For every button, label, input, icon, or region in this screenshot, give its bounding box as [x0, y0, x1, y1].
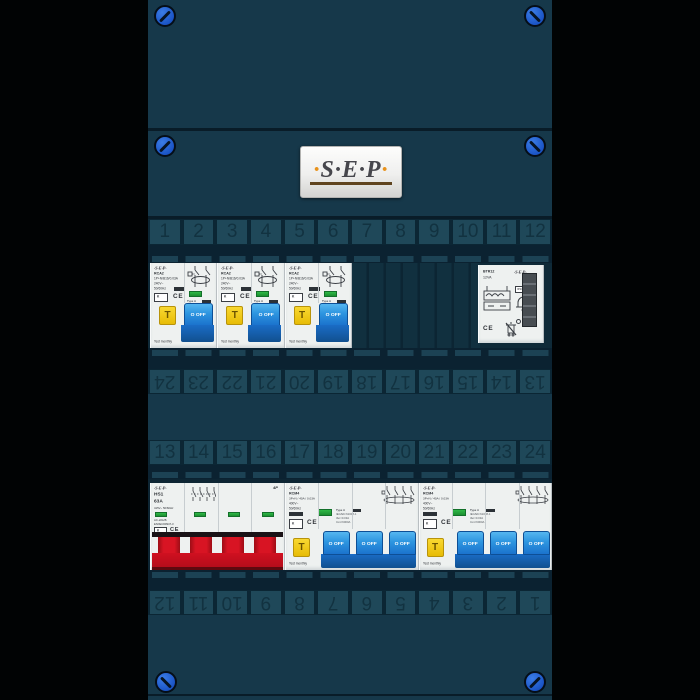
status-indicator [155, 512, 167, 517]
module-separator [184, 263, 185, 303]
voltage-label: 240V~ [221, 282, 230, 285]
module-separator [251, 263, 252, 303]
model-label: RCA2 [154, 272, 164, 276]
status-indicator [189, 291, 202, 297]
module-separator [318, 483, 319, 529]
module-number-cell: 11 [183, 590, 215, 615]
module-number-cell: 15 [216, 440, 248, 465]
standard-label: IEC/EN 61008-1 [470, 513, 490, 516]
main-switch: ·S·E·P· HS1 63A 415V~ 50/60Hz AC-22A/B E… [150, 483, 285, 570]
inm-label: Inm=6000A [470, 521, 484, 524]
kema-mark: K [423, 519, 437, 529]
test-monthly-note: Test monthly [154, 340, 172, 343]
idn-label: IΔn=0.03A [336, 517, 349, 520]
voltage-label: 400V~ [423, 502, 432, 505]
group-number-strip-lower-middle: 131415161718192021222324 [148, 440, 552, 465]
sep-logo: S·E·P [313, 159, 388, 181]
module-separator [385, 483, 386, 529]
poles-label: 4P [273, 486, 278, 490]
brand-plate: S·E·P [300, 146, 402, 198]
din-rail-row-bottom: ·S·E·P· HS1 63A 415V~ 50/60Hz AC-22A/B E… [148, 479, 552, 570]
status-indicator [256, 291, 269, 297]
kema-mark: K [289, 519, 303, 529]
module-number-cell: 19 [351, 440, 383, 465]
idn-label: IΔn=0.03A [470, 517, 483, 520]
module-number-cell: 15 [452, 369, 484, 394]
module-separator [352, 483, 353, 529]
cover-screw [154, 5, 176, 27]
module-number-cell: 18 [351, 369, 383, 394]
module-number-cell: 16 [250, 440, 282, 465]
module-number-cell: 5 [385, 590, 417, 615]
sep-mini-logo: ·S·E·P· [154, 266, 166, 270]
cover-screw [524, 671, 546, 693]
circuit-diagram-icon [190, 486, 216, 502]
frequency-label: 50/60Hz [289, 507, 301, 510]
module-separator [485, 483, 486, 529]
module-number-cell: 1 [149, 219, 181, 245]
type-label: Type A [336, 509, 345, 512]
circuit-diagram-icon [322, 265, 349, 288]
module-number-cell: 1 [519, 590, 551, 615]
rcd-switch: ·S·E·P· RCM4 3P+N / 40A / 0.03A 400V~ 50… [419, 483, 553, 570]
module-number-cell: 14 [183, 440, 215, 465]
breaker-toggle[interactable]: O OFF [251, 303, 280, 326]
cover-screw [524, 5, 546, 27]
module-separator [184, 483, 185, 532]
module-number-cell: 9 [250, 590, 282, 615]
cover-seam [148, 128, 552, 131]
model-label: RCM4 [423, 492, 433, 496]
transformer-symbol-icon [482, 285, 512, 313]
module-number-cell: 10 [452, 219, 484, 245]
standard-label: IEC/EN 61008-1 [336, 513, 356, 516]
model-label: BTR12 [483, 270, 494, 274]
test-button[interactable]: T [226, 306, 243, 325]
group-number-strip-bottom: 123456789101112 [148, 590, 552, 615]
main-switch-handle[interactable] [222, 537, 244, 554]
module-number-cell: 16 [418, 369, 450, 394]
circuit-diagram-icon [187, 265, 214, 288]
kema-mark: K [154, 293, 168, 302]
voltage-label: 400V~ [289, 502, 298, 505]
mounting-tabs [148, 350, 552, 356]
module-number-cell: 22 [216, 369, 248, 394]
circuit-diagram-icon [254, 265, 281, 288]
ce-mark: CE [483, 325, 494, 331]
current-label: 63A [154, 499, 163, 504]
rating-box [289, 512, 303, 516]
rcbo-group: ·S·E·P· RCA2 1P+N/B16/0.03A 240V~ 50/60H… [150, 263, 352, 348]
frequency-label: 50/60Hz [221, 287, 233, 290]
module-number-cell: 2 [486, 590, 518, 615]
ce-mark: CE [307, 519, 318, 525]
bell-transformer: BTR12 12VA ·S·E·P· IP20 [478, 265, 544, 343]
test-button[interactable]: T [293, 538, 310, 557]
test-monthly-note: Test monthly [423, 562, 441, 565]
module-number-cell: 7 [317, 590, 349, 615]
module-number-cell: 8 [385, 219, 417, 245]
module-number-cell: 21 [250, 369, 282, 394]
module-number-cell: 13 [149, 440, 181, 465]
sep-mini-logo: ·S·E·P· [154, 486, 166, 490]
ce-mark: CE [240, 293, 251, 299]
spec-label: 1P+N/B16/0.03A [154, 277, 178, 280]
rating-label: 12VA [483, 276, 492, 280]
toggle-base [321, 554, 416, 568]
module-number-cell: 11 [486, 219, 518, 245]
din-recess [148, 348, 552, 369]
toggle-base [248, 325, 281, 342]
spec-label: 3P+N / 40A / 0.03A [423, 497, 449, 500]
rcd-toggle[interactable]: O OFF [490, 531, 517, 555]
spec-label: 1P+N/B16/0.03A [221, 277, 245, 280]
distribution-board-photo: S·E·P 123456789101112 131415161718192021… [0, 0, 700, 700]
ce-mark: CE [173, 293, 184, 299]
module-number-cell: 20 [385, 440, 417, 465]
test-button[interactable]: T [159, 306, 176, 325]
din-rail-row-top: ·S·E·P· RCA2 1P+N/B16/0.03A 240V~ 50/60H… [148, 263, 552, 348]
test-button[interactable]: T [294, 306, 311, 325]
module-number-cell: 19 [317, 369, 349, 394]
status-indicator [262, 512, 274, 517]
status-indicator [452, 509, 466, 516]
rcd-toggle[interactable]: O OFF [523, 531, 550, 555]
module-number-cell: 3 [452, 590, 484, 615]
model-label: HS1 [154, 492, 163, 497]
rcd-toggle[interactable]: O OFF [389, 531, 416, 555]
status-indicator [324, 291, 337, 297]
status-indicator [228, 512, 240, 517]
module-separator [218, 483, 219, 532]
type-label: Type A [470, 509, 479, 512]
ce-mark: CE [441, 519, 452, 525]
rcd-toggle[interactable]: O OFF [323, 531, 350, 555]
module-number-cell: 8 [284, 590, 316, 615]
rcd-toggle[interactable]: O OFF [457, 531, 484, 555]
weee-bin-icon [505, 322, 517, 337]
breaker-toggle[interactable]: O OFF [319, 303, 348, 326]
spec-label: 3P+N / 40A / 0.03A [289, 497, 315, 500]
rcbo-breaker: ·S·E·P· RCA2 1P+N/B16/0.03A 240V~ 50/60H… [150, 263, 217, 348]
type-box [352, 509, 361, 512]
module-number-cell: 12 [149, 590, 181, 615]
empty-module-slots [352, 263, 480, 348]
type-box [486, 509, 495, 512]
sep-mini-logo: ·S·E·P· [423, 486, 435, 490]
model-label: RCA2 [289, 272, 299, 276]
frequency-label: 50/60Hz [289, 287, 301, 290]
rcd-group: ·S·E·P· RCM4 3P+N / 40A / 0.03A 400V~ 50… [285, 483, 552, 570]
toggle-base [455, 554, 550, 568]
module-number-cell: 18 [317, 440, 349, 465]
test-monthly-note: Test monthly [289, 340, 307, 343]
model-label: RCA2 [221, 272, 231, 276]
module-separator [318, 263, 319, 303]
consumer-unit-panel: S·E·P 123456789101112 131415161718192021… [148, 0, 552, 700]
cover-seam [148, 694, 552, 696]
module-number-cell: 6 [317, 219, 349, 245]
group-number-strip-top: 123456789101112 [148, 219, 552, 245]
terminal-strip [522, 273, 537, 327]
module-number-cell: 24 [149, 369, 181, 394]
sep-mini-logo: ·S·E·P· [221, 266, 233, 270]
module-number-cell: 14 [486, 369, 518, 394]
cover-screw [154, 135, 176, 157]
module-number-cell: 5 [284, 219, 316, 245]
module-separator [519, 483, 520, 529]
module-number-cell: 17 [385, 369, 417, 394]
model-label: RCM4 [289, 492, 299, 496]
kema-mark: K [221, 293, 235, 302]
test-monthly-note: Test monthly [289, 562, 307, 565]
switch-shadow [152, 567, 283, 570]
group-number-strip-upper-middle: 131415161718192021222324 [148, 369, 552, 394]
voltage-label: 240V~ [289, 282, 298, 285]
rcbo-breaker: ·S·E·P· RCA2 1P+N/B16/0.03A 240V~ 50/60H… [217, 263, 284, 348]
module-number-cell: 3 [216, 219, 248, 245]
module-number-cell: 21 [418, 440, 450, 465]
module-number-cell: 2 [183, 219, 215, 245]
cover-screw [155, 671, 177, 693]
test-monthly-note: Test monthly [221, 340, 239, 343]
sep-mini-logo: ·S·E·P· [289, 266, 301, 270]
main-switch-handle[interactable] [254, 537, 276, 554]
module-separator [251, 483, 252, 532]
module-number-cell: 6 [351, 590, 383, 615]
cover-screw [524, 135, 546, 157]
module-number-cell: 20 [284, 369, 316, 394]
status-indicator [194, 512, 206, 517]
module-number-cell: 24 [519, 440, 551, 465]
sep-logo-underline [310, 182, 392, 185]
module-number-cell: 10 [216, 590, 248, 615]
toggle-base [316, 325, 349, 342]
status-indicator [318, 509, 332, 516]
ce-mark: CE [308, 293, 319, 299]
module-number-cell: 9 [418, 219, 450, 245]
module-number-cell: 23 [486, 440, 518, 465]
module-number-cell: 23 [183, 369, 215, 394]
din-recess [148, 465, 552, 479]
toggle-base [181, 325, 214, 342]
din-recess [148, 570, 552, 590]
inm-label: Inm=6000A [336, 521, 350, 524]
kema-mark: K [289, 293, 303, 302]
module-number-cell: 12 [519, 219, 551, 245]
circuit-diagram-icon [381, 485, 415, 505]
module-number-cell: 7 [351, 219, 383, 245]
rating-box [423, 512, 437, 516]
breaker-toggle[interactable]: O OFF [184, 303, 213, 326]
module-number-cell: 13 [519, 369, 551, 394]
voltage-label: 240V~ [154, 282, 163, 285]
test-button[interactable]: T [427, 538, 444, 557]
module-number-cell: 22 [452, 440, 484, 465]
din-recess [148, 245, 552, 263]
bottom-devices: ·S·E·P· HS1 63A 415V~ 50/60Hz AC-22A/B E… [150, 483, 552, 570]
mounting-tabs [148, 472, 552, 478]
main-switch-handle[interactable] [190, 537, 212, 554]
utilization-label: AC-22A/B [154, 519, 166, 522]
rcd-toggle[interactable]: O OFF [356, 531, 383, 555]
module-number-cell: 17 [284, 440, 316, 465]
module-number-cell: 4 [418, 590, 450, 615]
frequency-label: 50/60Hz [423, 507, 435, 510]
spec-label: 1P+N/B16/0.03A [289, 277, 313, 280]
module-number-cell: 4 [250, 219, 282, 245]
rcd-switch: ·S·E·P· RCM4 3P+N / 40A / 0.03A 400V~ 50… [285, 483, 419, 570]
sep-mini-logo: ·S·E·P· [289, 486, 301, 490]
voltage-label: 415V~ 50/60Hz [154, 507, 173, 510]
rcbo-breaker: ·S·E·P· RCA2 1P+N/B16/0.03A 240V~ 50/60H… [285, 263, 352, 348]
frequency-label: 50/60Hz [154, 287, 166, 290]
circuit-diagram-icon [515, 485, 549, 505]
mounting-tabs [148, 256, 552, 262]
main-switch-handle[interactable] [158, 537, 180, 554]
module-separator [452, 483, 453, 529]
mounting-tabs [148, 572, 552, 578]
main-switch-bar[interactable] [152, 553, 283, 567]
